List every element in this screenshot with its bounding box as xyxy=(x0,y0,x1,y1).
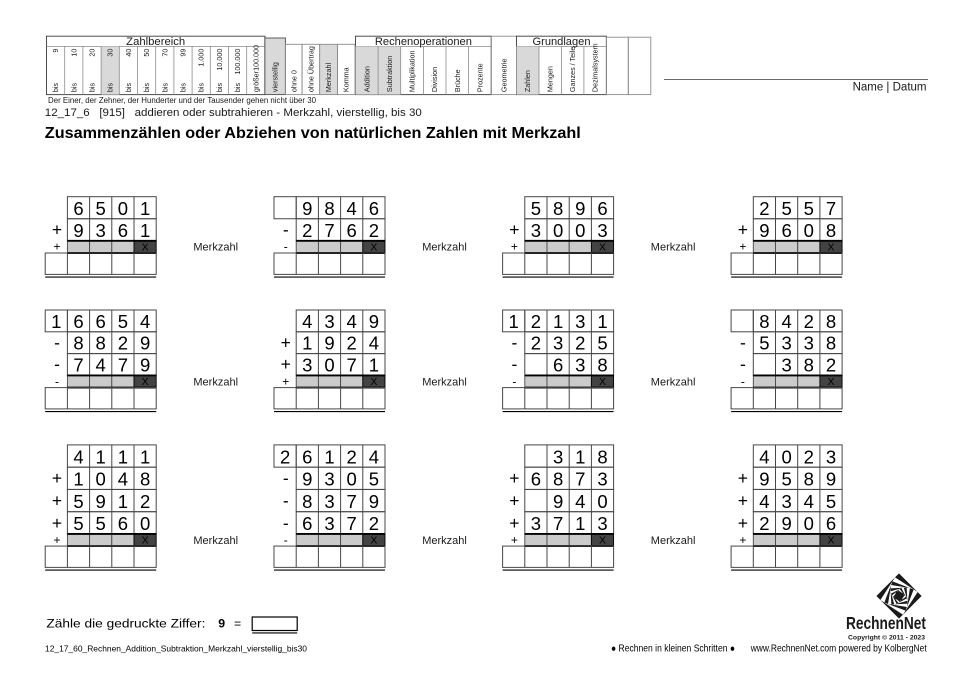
svg-text:+: + xyxy=(739,240,746,254)
svg-text:5: 5 xyxy=(597,333,607,354)
svg-text:6: 6 xyxy=(553,355,563,376)
svg-text:7: 7 xyxy=(347,513,357,534)
svg-text:+: + xyxy=(738,220,748,240)
svg-text:2: 2 xyxy=(118,333,128,354)
svg-text:4: 4 xyxy=(369,446,379,467)
svg-text:X: X xyxy=(599,241,606,253)
svg-text:2: 2 xyxy=(347,446,357,467)
svg-text:9: 9 xyxy=(324,333,334,354)
svg-text:-: - xyxy=(54,354,60,374)
svg-text:4: 4 xyxy=(96,355,106,376)
svg-text:1: 1 xyxy=(73,469,83,490)
svg-text:9: 9 xyxy=(369,311,379,332)
svg-text:7: 7 xyxy=(73,355,83,376)
svg-text:1: 1 xyxy=(509,311,519,332)
svg-text:7: 7 xyxy=(553,513,563,534)
svg-text:+: + xyxy=(52,491,62,511)
svg-text:Merkzahl: Merkzahl xyxy=(422,242,467,254)
svg-text:1: 1 xyxy=(96,446,106,467)
svg-text:8: 8 xyxy=(826,333,836,354)
svg-text:5: 5 xyxy=(804,198,814,219)
svg-text:0: 0 xyxy=(553,220,563,241)
svg-text:2: 2 xyxy=(369,220,379,241)
svg-text:0: 0 xyxy=(96,469,106,490)
svg-text:12_17_6 [915] addieren ode: 12_17_6 [915] addieren oder subtrahieren… xyxy=(45,107,422,119)
svg-text:X: X xyxy=(370,241,377,253)
svg-text:0: 0 xyxy=(347,469,357,490)
svg-text:-: - xyxy=(55,374,59,388)
svg-text:6: 6 xyxy=(96,311,106,332)
svg-text:X: X xyxy=(599,534,606,546)
svg-text:Merkzahl: Merkzahl xyxy=(324,63,333,93)
svg-text:1: 1 xyxy=(597,311,607,332)
svg-text:1: 1 xyxy=(575,513,585,534)
svg-text:4: 4 xyxy=(347,311,357,332)
svg-text:2: 2 xyxy=(302,220,312,241)
svg-text:6: 6 xyxy=(531,469,541,490)
svg-text:3: 3 xyxy=(324,491,334,512)
svg-text:0: 0 xyxy=(118,198,128,219)
svg-text:2: 2 xyxy=(347,333,357,354)
svg-text:X: X xyxy=(142,376,149,388)
svg-text:8: 8 xyxy=(597,446,607,467)
svg-text:1: 1 xyxy=(575,446,585,467)
svg-text:7: 7 xyxy=(324,220,334,241)
svg-text:0: 0 xyxy=(324,355,334,376)
svg-text:bis: bis xyxy=(124,83,133,93)
svg-text:-: - xyxy=(283,513,289,533)
svg-text:4: 4 xyxy=(759,446,769,467)
svg-text:5: 5 xyxy=(73,513,83,534)
svg-text:1: 1 xyxy=(324,446,334,467)
svg-text:50: 50 xyxy=(142,49,151,57)
svg-text:Geometrie: Geometrie xyxy=(499,59,508,93)
svg-text:7: 7 xyxy=(118,355,128,376)
svg-text:1: 1 xyxy=(369,355,379,376)
svg-text:Prozente: Prozente xyxy=(475,63,484,92)
svg-text:3: 3 xyxy=(324,311,334,332)
svg-text:8: 8 xyxy=(324,198,334,219)
svg-text:Merkzahl: Merkzahl xyxy=(651,242,696,254)
svg-text:Komma: Komma xyxy=(342,67,351,92)
svg-text:+: + xyxy=(509,491,519,511)
svg-text:2: 2 xyxy=(531,333,541,354)
svg-text:9: 9 xyxy=(302,469,312,490)
svg-text:5: 5 xyxy=(759,333,769,354)
svg-text:www.RechnenNet.com powered by: www.RechnenNet.com powered by KolbergNet xyxy=(750,643,927,654)
svg-text:X: X xyxy=(599,376,606,388)
svg-text:4: 4 xyxy=(118,469,128,490)
svg-text:0: 0 xyxy=(575,220,585,241)
svg-text:9: 9 xyxy=(73,220,83,241)
svg-text:6: 6 xyxy=(118,513,128,534)
svg-text:3: 3 xyxy=(553,446,563,467)
svg-text:1: 1 xyxy=(118,491,128,512)
svg-text:bis: bis xyxy=(179,83,188,93)
svg-text:4: 4 xyxy=(804,491,814,512)
svg-text:0: 0 xyxy=(804,220,814,241)
svg-text:Zahlen: Zahlen xyxy=(523,70,532,92)
svg-text:RechnenNet: RechnenNet xyxy=(846,613,926,633)
svg-text:größer100.000: größer100.000 xyxy=(251,45,260,92)
svg-text:9: 9 xyxy=(140,355,150,376)
svg-text:7: 7 xyxy=(347,355,357,376)
svg-text:-: - xyxy=(283,468,289,488)
svg-text:Addition: Addition xyxy=(362,66,371,92)
svg-text:8: 8 xyxy=(804,469,814,490)
svg-text:3: 3 xyxy=(575,355,585,376)
svg-text:3: 3 xyxy=(781,333,791,354)
svg-text:bis: bis xyxy=(142,83,151,93)
svg-text:+: + xyxy=(509,220,519,240)
svg-text:20: 20 xyxy=(88,49,97,57)
svg-text:9: 9 xyxy=(781,513,791,534)
svg-text:8: 8 xyxy=(553,469,563,490)
svg-text:Name | Datum: Name | Datum xyxy=(853,81,927,93)
svg-text:Merkzahl: Merkzahl xyxy=(193,376,238,388)
svg-text:+: + xyxy=(52,468,62,488)
svg-text:2: 2 xyxy=(280,446,290,467)
svg-text:4: 4 xyxy=(781,311,791,332)
svg-text:4: 4 xyxy=(73,446,83,467)
svg-text:8: 8 xyxy=(73,333,83,354)
svg-text:1: 1 xyxy=(140,446,150,467)
svg-text:2: 2 xyxy=(826,355,836,376)
svg-text:3: 3 xyxy=(531,220,541,241)
svg-text:Merkzahl: Merkzahl xyxy=(193,242,238,254)
svg-text:5: 5 xyxy=(118,311,128,332)
svg-text:6: 6 xyxy=(347,220,357,241)
svg-text:-: - xyxy=(54,332,60,352)
svg-text:Brüche: Brüche xyxy=(453,69,462,92)
svg-text:Zahlbereich: Zahlbereich xyxy=(126,36,185,48)
svg-text:9: 9 xyxy=(759,469,769,490)
svg-text:3: 3 xyxy=(324,469,334,490)
svg-text:2: 2 xyxy=(804,446,814,467)
svg-text:-: - xyxy=(284,533,288,547)
svg-text:4: 4 xyxy=(140,311,150,332)
svg-text:5: 5 xyxy=(531,198,541,219)
svg-text:1: 1 xyxy=(140,220,150,241)
svg-text:bis: bis xyxy=(106,83,115,93)
svg-text:Zähle die gedruckte Ziffer:: Zähle die gedruckte Ziffer: xyxy=(46,617,205,631)
svg-text:30: 30 xyxy=(106,49,115,57)
svg-text:3: 3 xyxy=(96,220,106,241)
svg-text:+: + xyxy=(281,332,291,352)
svg-text:3: 3 xyxy=(575,311,585,332)
svg-text:X: X xyxy=(142,241,149,253)
svg-text:Zusammenzählen oder Abziehen v: Zusammenzählen oder Abziehen von natürli… xyxy=(45,125,581,142)
svg-text:+: + xyxy=(511,240,518,254)
svg-text:4: 4 xyxy=(347,198,357,219)
svg-text:2: 2 xyxy=(759,198,769,219)
svg-text:3: 3 xyxy=(553,333,563,354)
svg-text:5: 5 xyxy=(73,491,83,512)
svg-text:-: - xyxy=(740,332,746,352)
svg-text:10: 10 xyxy=(69,49,78,57)
svg-text:+: + xyxy=(511,533,518,547)
svg-text:12_17_60_Rechnen_Addition_Subt: 12_17_60_Rechnen_Addition_Subtraktion_Me… xyxy=(45,643,307,653)
svg-text:8: 8 xyxy=(826,311,836,332)
svg-text:9: 9 xyxy=(369,491,379,512)
svg-text:ohne Übertrag: ohne Übertrag xyxy=(306,46,315,92)
svg-text:2: 2 xyxy=(531,311,541,332)
svg-text:+: + xyxy=(739,533,746,547)
svg-text:X: X xyxy=(370,534,377,546)
svg-text:100.000: 100.000 xyxy=(233,49,242,75)
svg-text:+: + xyxy=(53,240,60,254)
svg-text:9: 9 xyxy=(96,491,106,512)
svg-text:bis: bis xyxy=(51,83,60,93)
svg-text:+: + xyxy=(738,513,748,533)
svg-text:X: X xyxy=(827,241,834,253)
svg-text:10.000: 10.000 xyxy=(215,49,224,71)
svg-text:8: 8 xyxy=(826,220,836,241)
svg-text:-: - xyxy=(283,491,289,511)
svg-text:Merkzahl: Merkzahl xyxy=(422,376,467,388)
svg-text:2: 2 xyxy=(369,513,379,534)
svg-text:● Rechnen in kleinen Schritten: ● Rechnen in kleinen Schritten ● xyxy=(611,643,735,654)
svg-text:vierstellig: vierstellig xyxy=(271,62,280,92)
svg-text:X: X xyxy=(827,376,834,388)
svg-text:4: 4 xyxy=(759,491,769,512)
svg-text:8: 8 xyxy=(804,355,814,376)
svg-text:5: 5 xyxy=(96,198,106,219)
svg-text:6: 6 xyxy=(73,198,83,219)
svg-text:7: 7 xyxy=(575,469,585,490)
svg-text:bis: bis xyxy=(88,83,97,93)
svg-text:6: 6 xyxy=(826,513,836,534)
svg-text:5: 5 xyxy=(369,469,379,490)
svg-text:4: 4 xyxy=(575,491,585,512)
svg-text:Division: Division xyxy=(430,67,439,92)
svg-text:7: 7 xyxy=(826,198,836,219)
svg-text:9: 9 xyxy=(553,491,563,512)
svg-text:9: 9 xyxy=(140,333,150,354)
svg-text:7: 7 xyxy=(347,491,357,512)
svg-text:9: 9 xyxy=(575,198,585,219)
svg-text:1: 1 xyxy=(302,333,312,354)
svg-text:8: 8 xyxy=(759,311,769,332)
svg-text:Merkzahl: Merkzahl xyxy=(651,535,696,547)
svg-text:4: 4 xyxy=(369,333,379,354)
svg-text:3: 3 xyxy=(804,333,814,354)
svg-text:+: + xyxy=(281,354,291,374)
svg-text:5: 5 xyxy=(96,513,106,534)
svg-text:2: 2 xyxy=(759,513,769,534)
svg-text:8: 8 xyxy=(302,491,312,512)
svg-text:bis: bis xyxy=(233,83,242,93)
svg-text:Merkzahl: Merkzahl xyxy=(651,376,696,388)
svg-text:6: 6 xyxy=(118,220,128,241)
svg-text:1: 1 xyxy=(118,446,128,467)
svg-text:0: 0 xyxy=(140,513,150,534)
svg-text:X: X xyxy=(370,376,377,388)
svg-text:-: - xyxy=(284,240,288,254)
svg-text:8: 8 xyxy=(140,469,150,490)
svg-text:3: 3 xyxy=(597,513,607,534)
svg-text:+: + xyxy=(53,533,60,547)
svg-text:bis: bis xyxy=(69,83,78,93)
svg-text:9: 9 xyxy=(759,220,769,241)
svg-text:X: X xyxy=(827,534,834,546)
svg-text:9: 9 xyxy=(218,617,225,631)
svg-text:+: + xyxy=(738,468,748,488)
svg-text:6: 6 xyxy=(73,311,83,332)
svg-text:6: 6 xyxy=(302,446,312,467)
svg-text:3: 3 xyxy=(826,446,836,467)
svg-text:Multiplikation: Multiplikation xyxy=(408,51,417,93)
svg-text:4: 4 xyxy=(302,311,312,332)
svg-text:Dezimalsystem: Dezimalsystem xyxy=(591,43,600,92)
svg-text:+: + xyxy=(509,513,519,533)
svg-text:-: - xyxy=(511,332,517,352)
svg-text:8: 8 xyxy=(553,198,563,219)
svg-text:9: 9 xyxy=(302,198,312,219)
svg-text:9: 9 xyxy=(51,49,60,53)
svg-text:1: 1 xyxy=(51,311,61,332)
svg-text:+: + xyxy=(509,468,519,488)
svg-text:2: 2 xyxy=(140,491,150,512)
svg-text:3: 3 xyxy=(302,355,312,376)
svg-text:Der Einer, der Zehner, der Hun: Der Einer, der Zehner, der Hunderter und… xyxy=(48,96,317,105)
svg-text:6: 6 xyxy=(302,513,312,534)
svg-text:-: - xyxy=(512,374,516,388)
svg-text:+: + xyxy=(738,491,748,511)
svg-text:3: 3 xyxy=(597,220,607,241)
svg-text:6: 6 xyxy=(781,220,791,241)
svg-text:40: 40 xyxy=(124,49,133,57)
svg-text:Ganzes / Teile: Ganzes / Teile xyxy=(568,47,577,92)
svg-text:X: X xyxy=(142,534,149,546)
svg-text:3: 3 xyxy=(531,513,541,534)
svg-text:bis: bis xyxy=(215,83,224,93)
svg-text:+: + xyxy=(52,513,62,533)
svg-text:Subtraktion: Subtraktion xyxy=(385,56,394,92)
svg-text:1.000: 1.000 xyxy=(197,49,206,67)
svg-text:2: 2 xyxy=(804,311,814,332)
svg-text:70: 70 xyxy=(160,49,169,57)
svg-text:-: - xyxy=(741,374,745,388)
svg-text:5: 5 xyxy=(826,491,836,512)
svg-text:Mengen: Mengen xyxy=(546,66,555,92)
svg-text:Rechenoperationen: Rechenoperationen xyxy=(375,36,472,48)
svg-text:3: 3 xyxy=(781,491,791,512)
svg-text:5: 5 xyxy=(781,469,791,490)
svg-text:8: 8 xyxy=(597,355,607,376)
svg-text:99: 99 xyxy=(179,49,188,57)
svg-text:Merkzahl: Merkzahl xyxy=(193,535,238,547)
svg-text:+: + xyxy=(52,220,62,240)
svg-text:6: 6 xyxy=(369,198,379,219)
svg-text:0: 0 xyxy=(804,513,814,534)
svg-text:-: - xyxy=(511,354,517,374)
svg-text:Grundlagen: Grundlagen xyxy=(533,36,591,48)
svg-text:3: 3 xyxy=(324,513,334,534)
svg-text:-: - xyxy=(740,354,746,374)
svg-text:8: 8 xyxy=(96,333,106,354)
svg-text:bis: bis xyxy=(160,83,169,93)
svg-text:-: - xyxy=(283,220,289,240)
svg-text:ohne 0: ohne 0 xyxy=(289,70,298,92)
svg-text:3: 3 xyxy=(781,355,791,376)
svg-text:6: 6 xyxy=(597,198,607,219)
svg-text:+: + xyxy=(282,374,289,388)
svg-text:3: 3 xyxy=(597,469,607,490)
svg-text:Merkzahl: Merkzahl xyxy=(422,535,467,547)
svg-text:1: 1 xyxy=(140,198,150,219)
svg-text:1: 1 xyxy=(553,311,563,332)
svg-text:5: 5 xyxy=(781,198,791,219)
svg-text:0: 0 xyxy=(781,446,791,467)
svg-text:0: 0 xyxy=(597,491,607,512)
svg-text:=: = xyxy=(234,617,241,631)
svg-text:2: 2 xyxy=(575,333,585,354)
svg-text:bis: bis xyxy=(197,83,206,93)
svg-text:9: 9 xyxy=(826,469,836,490)
svg-text:Copyright © 2011 - 2023: Copyright © 2011 - 2023 xyxy=(848,634,925,642)
